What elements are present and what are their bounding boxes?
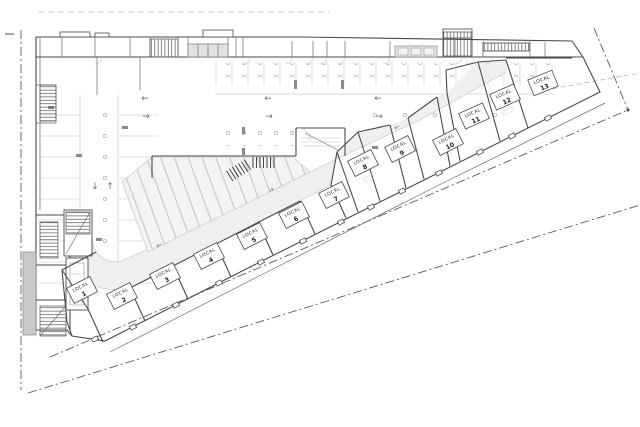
floor-plan-drawing: LOCAL 1 LOCAL 2 LOCAL 3 LOCAL 4 LOCAL 5 … — [0, 0, 640, 427]
unit-label-box — [348, 150, 379, 177]
direction-arrow-right-icon: → — [375, 112, 383, 122]
direction-arrow-down-icon: ↓ — [91, 182, 99, 192]
direction-arrow-left-icon: ← — [374, 94, 382, 104]
unit-label-box — [385, 136, 416, 163]
ramp-slope-line — [305, 133, 338, 150]
column-grid-pocket — [215, 130, 295, 146]
ramp-treads — [302, 138, 340, 146]
floor-plan-canvas: LOCAL 1 LOCAL 2 LOCAL 3 LOCAL 4 LOCAL 5 … — [0, 0, 640, 427]
boundary-corner-point — [626, 108, 629, 111]
direction-arrow-right-icon: → — [142, 112, 150, 122]
bike-rack-icon — [253, 157, 274, 168]
direction-arrow-up-icon: ↑ — [106, 182, 114, 192]
stair-icon — [40, 85, 56, 121]
direction-arrow-right-icon: → — [265, 112, 273, 122]
unit-label-9: LOCAL 9 — [385, 136, 416, 163]
direction-arrow-left-icon: ← — [141, 94, 149, 104]
elevator-icon — [188, 44, 228, 57]
direction-arrow-left-icon: ← — [264, 94, 272, 104]
stair-icon — [66, 212, 90, 234]
unit-label-8: LOCAL 8 — [348, 150, 379, 177]
exterior-ramp — [23, 252, 36, 335]
column-grid-north — [215, 63, 560, 77]
site-boundary-line-east — [594, 28, 628, 110]
stair-icon — [40, 222, 58, 258]
louver-grille-icon — [483, 43, 529, 51]
service-units — [395, 46, 437, 57]
unit-label-10: LOCAL 10 — [433, 129, 464, 156]
